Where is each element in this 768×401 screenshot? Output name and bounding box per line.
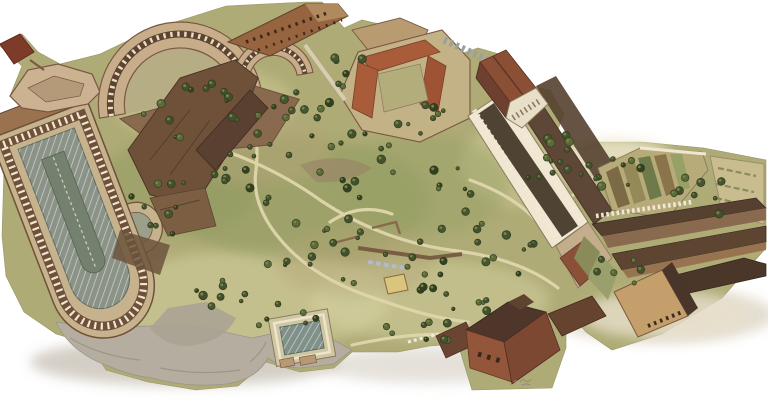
yellow-ruin-square [384, 274, 408, 294]
tree [256, 323, 261, 328]
tree [148, 222, 154, 228]
tree [300, 310, 306, 316]
tree [475, 239, 481, 245]
tree [394, 120, 402, 128]
tree [317, 105, 324, 112]
tree [129, 194, 135, 200]
tree [356, 236, 360, 240]
tree [718, 178, 726, 186]
tree [565, 147, 570, 152]
tree [341, 248, 350, 257]
tree [348, 130, 357, 139]
tree [324, 226, 330, 232]
tree [286, 152, 292, 158]
tree [628, 157, 634, 163]
tree [263, 200, 269, 206]
tree [351, 177, 359, 185]
tree [383, 323, 390, 330]
tree [543, 154, 550, 161]
tree [626, 183, 630, 187]
tree [141, 112, 146, 117]
tree [383, 252, 388, 257]
tree [715, 210, 723, 218]
tree [311, 241, 319, 249]
tree [528, 242, 533, 247]
tree [440, 336, 448, 344]
tree [516, 271, 521, 276]
tree [440, 257, 447, 264]
tree [217, 293, 224, 300]
tree [579, 172, 583, 176]
tree [313, 315, 319, 321]
tree [490, 254, 497, 261]
tree [308, 262, 312, 266]
tree [441, 109, 445, 113]
tree [637, 164, 645, 172]
tree [417, 239, 423, 245]
tree [265, 317, 270, 322]
tree [223, 166, 227, 170]
tree [341, 277, 345, 281]
tree [462, 208, 470, 216]
tree [526, 175, 531, 180]
tree [435, 111, 441, 117]
tree [391, 170, 396, 175]
tree [430, 166, 439, 175]
tree [242, 291, 248, 297]
tree [406, 122, 410, 126]
tree [419, 131, 423, 135]
tree [357, 195, 362, 200]
tree [621, 163, 626, 168]
tree [304, 321, 308, 325]
tree [351, 280, 357, 286]
tree [438, 225, 446, 233]
tree [242, 166, 249, 173]
tree [537, 174, 543, 180]
illustration-canvas: Green hilltop with scattered dark trees,… [0, 0, 768, 401]
tree [546, 138, 555, 147]
tree [476, 299, 482, 305]
tree [386, 143, 391, 148]
tree [549, 160, 553, 164]
tree [167, 180, 175, 188]
tree [208, 303, 215, 310]
tree [344, 215, 352, 223]
tree [422, 102, 429, 109]
tree [165, 210, 173, 218]
tree [444, 291, 449, 296]
tree [463, 187, 467, 191]
tree [426, 319, 433, 326]
tree [282, 114, 289, 121]
tree [203, 85, 209, 91]
tree [153, 223, 158, 228]
tree [264, 260, 271, 267]
tree [405, 264, 410, 269]
tree [713, 196, 717, 200]
tree [557, 159, 562, 164]
tree [343, 184, 351, 192]
tree [266, 195, 271, 200]
tree [594, 176, 599, 181]
tree [422, 272, 428, 278]
tree [142, 204, 147, 209]
tree [294, 90, 300, 96]
tree [228, 152, 233, 157]
tree [681, 174, 689, 182]
tree [697, 178, 705, 186]
tree [222, 178, 228, 184]
tree [611, 270, 617, 276]
tree [429, 285, 436, 292]
tree [328, 143, 335, 150]
tree [565, 137, 574, 146]
tree [157, 99, 165, 107]
tree [343, 70, 350, 77]
tree [272, 104, 277, 109]
tree [436, 186, 441, 191]
tree [467, 190, 474, 197]
tree [430, 115, 435, 120]
tree [522, 248, 526, 252]
tree [254, 130, 262, 138]
tree [314, 114, 321, 121]
tree [598, 256, 604, 262]
tree [502, 231, 511, 240]
tree [473, 225, 481, 233]
aerial-illustration: Green hilltop with scattered dark trees,… [0, 0, 768, 401]
tree [483, 297, 489, 303]
tree [631, 258, 636, 263]
tree [610, 157, 615, 162]
tree [246, 184, 254, 192]
tree [308, 253, 316, 261]
tree [331, 54, 339, 62]
tree [300, 105, 308, 113]
tree [479, 221, 484, 226]
tree [357, 229, 364, 236]
tree [483, 307, 491, 315]
tree [358, 55, 367, 64]
tree [255, 112, 261, 118]
tree [550, 170, 555, 175]
tree [268, 142, 272, 146]
tree [586, 162, 592, 168]
tree [170, 231, 175, 236]
tree [330, 239, 337, 246]
tree [220, 278, 225, 283]
tree [438, 272, 443, 277]
tree [379, 146, 384, 151]
tree [283, 263, 287, 267]
tree [594, 268, 601, 275]
tree [208, 80, 216, 88]
tree [409, 254, 416, 261]
tree [390, 331, 395, 336]
tree [671, 190, 678, 197]
tree [363, 132, 368, 137]
tree [310, 134, 315, 139]
tree [288, 107, 295, 114]
tree [325, 98, 334, 107]
tree [176, 134, 183, 141]
tree [182, 181, 186, 185]
tree [419, 283, 427, 291]
tree [211, 171, 218, 178]
tree [154, 180, 162, 188]
tree [182, 83, 190, 91]
tree [340, 177, 346, 183]
tree [456, 167, 460, 171]
tree [195, 289, 199, 293]
tree [252, 154, 256, 158]
tree [166, 116, 174, 124]
tree [292, 219, 300, 227]
tree [691, 192, 697, 198]
corner-bastion: Angular bastion platform jutting out at … [0, 34, 100, 112]
tree [564, 166, 572, 174]
tree [228, 113, 236, 121]
tree [443, 319, 451, 327]
tree [221, 88, 228, 95]
tree [637, 266, 645, 274]
tree [336, 81, 342, 87]
tree [597, 182, 606, 191]
tree [430, 103, 438, 111]
tree [248, 144, 253, 149]
tree [275, 301, 281, 307]
tree [317, 169, 324, 176]
tree [174, 205, 178, 209]
tree [280, 95, 289, 104]
tree [339, 141, 344, 146]
tree [225, 99, 229, 103]
tree [424, 337, 429, 342]
tree [199, 291, 208, 300]
tree [377, 155, 386, 164]
tree [239, 299, 243, 303]
tree [452, 307, 456, 311]
tree [632, 281, 636, 285]
tree [482, 258, 490, 266]
